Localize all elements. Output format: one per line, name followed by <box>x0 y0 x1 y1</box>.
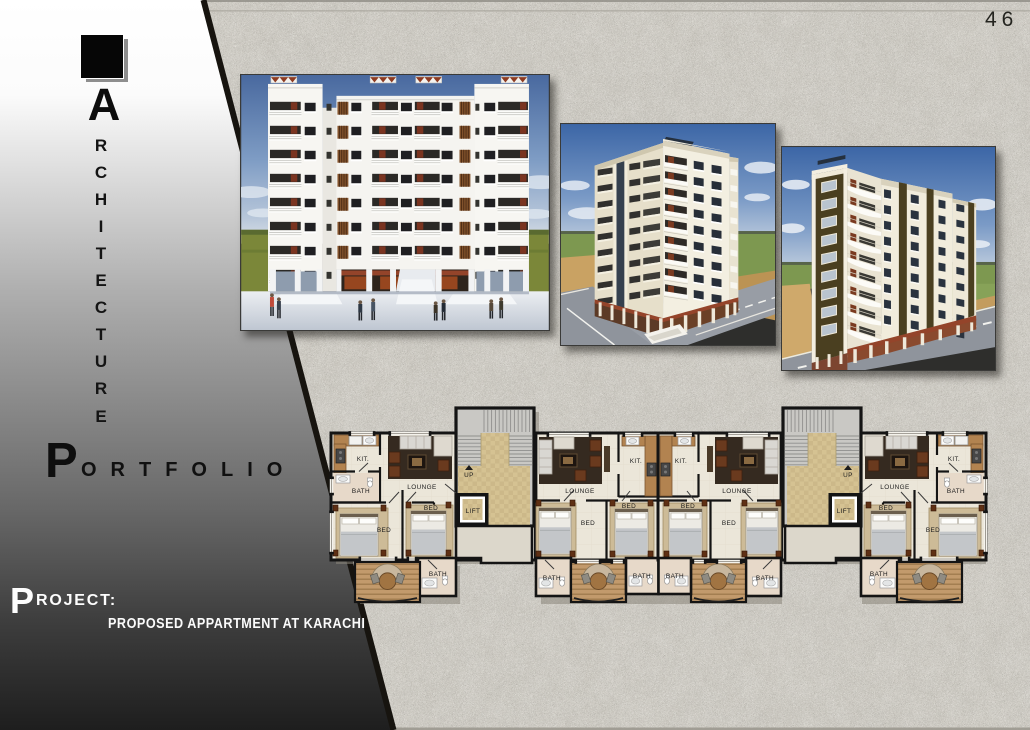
svg-text:BED: BED <box>377 527 391 534</box>
svg-text:BED: BED <box>622 503 636 510</box>
svg-text:KIT.: KIT. <box>675 458 687 465</box>
svg-text:BATH: BATH <box>429 571 447 578</box>
svg-text:LOUNGE: LOUNGE <box>565 488 594 495</box>
svg-text:BATH: BATH <box>666 573 684 580</box>
svg-text:BED: BED <box>722 520 736 527</box>
svg-text:BATH: BATH <box>947 488 965 495</box>
svg-text:UP: UP <box>843 472 853 479</box>
svg-text:KIT.: KIT. <box>357 456 369 463</box>
svg-text:LOUNGE: LOUNGE <box>880 484 909 491</box>
svg-text:KIT.: KIT. <box>630 458 642 465</box>
svg-text:BATH: BATH <box>543 575 561 582</box>
svg-text:KIT.: KIT. <box>948 456 960 463</box>
svg-text:LOUNGE: LOUNGE <box>407 484 436 491</box>
svg-text:LIFT: LIFT <box>837 508 852 515</box>
svg-text:LOUNGE: LOUNGE <box>722 488 751 495</box>
svg-text:BED: BED <box>926 527 940 534</box>
svg-text:BATH: BATH <box>352 488 370 495</box>
svg-text:BED: BED <box>424 505 438 512</box>
svg-text:BATH: BATH <box>870 571 888 578</box>
svg-text:BATH: BATH <box>756 575 774 582</box>
svg-text:LIFT: LIFT <box>466 508 481 515</box>
svg-text:BED: BED <box>879 505 893 512</box>
svg-text:BED: BED <box>581 520 595 527</box>
svg-text:BATH: BATH <box>633 573 651 580</box>
svg-text:UP: UP <box>464 472 474 479</box>
svg-text:BED: BED <box>681 503 695 510</box>
